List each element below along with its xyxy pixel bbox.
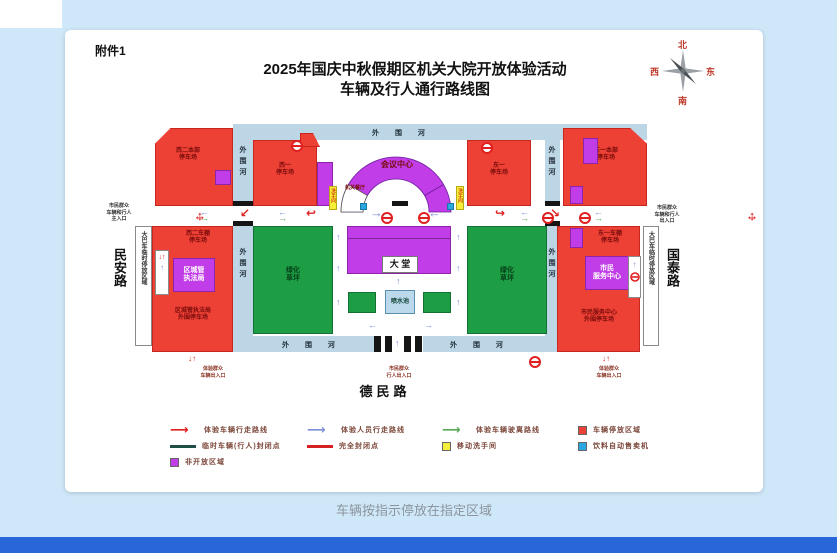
two-way-route-icon: ←→ <box>200 209 209 221</box>
bus-parking-strip-west-label: 大巴车临时停放区域 <box>139 231 148 285</box>
building-divider <box>348 238 450 239</box>
two-way-route-icon: ←→ <box>520 209 529 221</box>
compass-west-label: 西 <box>650 65 659 78</box>
pedestrian-up-arrow: ↑ <box>336 297 341 307</box>
route-right-arrow: → <box>594 215 603 221</box>
river-top-label: 外 围 河 <box>372 128 432 138</box>
gate-pillar <box>385 336 392 352</box>
pedestrian-up-arrow: ↑ <box>456 263 461 273</box>
entrance-southeast-label: 体验群众 车辆出入口 <box>582 366 636 379</box>
compass: 北 西 东 南 <box>650 38 716 106</box>
pedestrian-up-arrow: ↑ <box>336 263 341 273</box>
parking-e1-line2: 停车场 <box>469 170 529 177</box>
canteen-label: 机关餐厅 <box>340 185 370 191</box>
gate-pillar <box>374 336 381 352</box>
lobby-block: 大 堂 <box>382 256 418 273</box>
pedestrian-arrow-icon: ← <box>428 205 441 220</box>
lawn-west-line2: 草坪 <box>254 275 332 283</box>
bottom-bar <box>0 537 837 553</box>
crossroads-arrow-icon: ↔↕ <box>745 209 759 222</box>
pedestrian-right-arrow: → <box>424 320 433 330</box>
toilet-marker-east: 洗手间 <box>456 186 464 210</box>
bus-parking-strip-east-label: 大巴车临时停放区域 <box>647 231 656 285</box>
pedestrian-up-arrow: ↑ <box>395 338 400 348</box>
lawn-east-line2: 草坪 <box>468 275 546 283</box>
legend-item-parking-area: 车辆停放区域 <box>578 425 641 435</box>
page-caption: 车辆按指示停放在指定区域 <box>65 500 763 519</box>
bus-parking-strip-east: 大巴车临时停放区域 <box>643 226 659 346</box>
closure-bar <box>233 221 253 226</box>
lawn-east-label: 绿化 草坪 <box>468 267 546 284</box>
restricted-patch <box>215 170 231 185</box>
legend-label: 临时车辆(行人)封闭点 <box>202 441 281 451</box>
vehicle-gate-arrows: ↓↑ <box>188 354 196 363</box>
pedestrian-up-arrow: ↑ <box>396 276 401 286</box>
legend-item-vending-machine: 饮料自动售卖机 <box>578 441 649 451</box>
no-entry-icon <box>529 356 541 368</box>
legend-label: 体验车辆驶离路线 <box>476 425 540 435</box>
river-left-upper-label: 外围河 <box>239 146 246 179</box>
turn-arrow-icon: ↙ <box>240 206 250 220</box>
legend-item-pedestrian-route: ⟶ 体验人员行走路线 <box>307 425 405 435</box>
west-shed-line2: 停车场 <box>172 238 224 245</box>
river-right-upper-label: 外围河 <box>548 146 555 179</box>
purple-square-icon <box>170 458 179 467</box>
entrance-sw-line2: 车辆出入口 <box>186 373 240 380</box>
route-right-arrow: → <box>278 215 287 221</box>
urban-mgmt-line2: 执法局 <box>184 275 205 283</box>
toilet-marker-west: 洗手间 <box>329 186 337 210</box>
lawn-east-block: 绿化 草坪 <box>467 226 547 334</box>
page: 附件1 2025年国庆中秋假期区机关大院开放体验活动 车辆及行人通行路线图 北 … <box>0 0 837 553</box>
parking-w1-line2: 停车场 <box>255 170 315 177</box>
red-route-arrow-icon: ⟶ <box>170 425 198 435</box>
legend-item-departure-route: ⟶ 体验车辆驶离路线 <box>442 425 540 435</box>
toilet-marker-label: 洗手间 <box>330 188 337 203</box>
entrance-south-label: 市民群众 行人出入口 <box>374 366 424 379</box>
entrance-west-label: 市民群众 车辆和行人 主入口 <box>96 203 142 223</box>
green-planter-west <box>348 292 376 313</box>
vehicle-arrows: ↓↑ <box>159 254 166 261</box>
route-right-arrow: → <box>200 215 209 221</box>
river-bottom-right-label: 外 围 河 <box>450 340 510 350</box>
cyan-square-icon <box>578 442 587 451</box>
urban-mgmt-lot-line2: 外围停车场 <box>160 315 226 322</box>
restricted-patch <box>583 138 598 164</box>
citizen-service-center-block: 市民 服务中心 <box>585 256 629 290</box>
arrow-vertical: ↕ <box>745 209 759 222</box>
pedestrian-arrow-icon: → <box>370 205 383 220</box>
river-right-lower-label: 外围河 <box>548 248 555 281</box>
compass-east-label: 东 <box>706 65 715 78</box>
blue-route-arrow-icon: ⟶ <box>307 425 335 435</box>
legend-label: 非开放区域 <box>185 457 225 467</box>
urban-mgmt-bureau-block: 区城管 执法局 <box>173 258 215 292</box>
green-route-arrow-icon: ⟶ <box>442 425 470 435</box>
road-south-label: 德民路 <box>345 381 425 400</box>
service-lot-line2: 外围停车场 <box>566 317 632 324</box>
lawn-west-label: 绿化 草坪 <box>254 267 332 284</box>
east-shed-label: 东一车棚 停车场 <box>586 231 634 245</box>
entrance-south-line2: 行人出入口 <box>374 373 424 380</box>
service-line2: 服务中心 <box>593 273 621 281</box>
conference-center-label: 会议中心 <box>355 160 439 170</box>
map-title-line1: 2025年国庆中秋假期区机关大院开放体验活动 <box>155 58 675 79</box>
restricted-patch <box>570 186 583 204</box>
red-square-icon <box>578 426 587 435</box>
toilet-marker-label: 洗手间 <box>457 188 464 203</box>
pedestrian-left-arrow: ← <box>368 320 377 330</box>
road-east-label: 国泰路 <box>663 248 682 287</box>
pedestrian-arrow: ↑ <box>160 263 164 272</box>
pedestrian-up-arrow: ↑ <box>456 232 461 242</box>
river-bottom-left-label: 外 围 河 <box>282 340 342 350</box>
no-entry-icon <box>630 272 640 282</box>
uturn-arrow-icon: ↩ <box>306 206 316 220</box>
river-left-lower <box>233 226 253 336</box>
legend-label: 车辆停放区域 <box>593 425 641 435</box>
green-planter-east <box>423 292 451 313</box>
pedestrian-up-arrow: ↑ <box>456 297 461 307</box>
red-line-icon <box>307 445 333 448</box>
two-way-route-icon: ←→ <box>594 209 603 221</box>
gate-pillar <box>404 336 411 352</box>
east-vehicle-lane: ↑ <box>628 256 641 298</box>
no-entry-icon <box>579 212 591 224</box>
urban-mgmt-lot-label: 区城管执法局 外围停车场 <box>160 308 226 322</box>
bus-parking-strip-west: 大巴车临时停放区域 <box>135 226 152 346</box>
page-corner <box>0 0 62 28</box>
east-shed-line2: 停车场 <box>586 238 634 245</box>
legend-label: 完全封闭点 <box>339 441 379 451</box>
legend-item-vehicle-route: ⟶ 体验车辆行走路线 <box>170 425 268 435</box>
turn-arrow-icon: ↘ <box>550 206 560 220</box>
entrance-east-line3: 出入口 <box>644 218 690 225</box>
pedestrian-arrow: ↑ <box>633 260 637 269</box>
vending-machine-marker <box>447 203 454 210</box>
entrance-southwest-label: 体验群众 车辆出入口 <box>186 366 240 379</box>
pedestrian-up-arrow: ↑ <box>336 232 341 242</box>
lawn-west-block: 绿化 草坪 <box>253 226 333 334</box>
west-vehicle-lane: ↓↑ ↑ <box>155 250 169 295</box>
legend-item-mobile-toilet: 移动洗手间 <box>442 441 497 451</box>
uturn-arrow-icon: ↪ <box>495 206 505 220</box>
attachment-label: 附件1 <box>95 42 126 59</box>
service-lot-label: 市民服务中心 外围停车场 <box>566 310 632 324</box>
yellow-square-icon <box>442 442 451 451</box>
vehicle-gate-arrows: ↓↑ <box>602 354 610 363</box>
compass-star-icon <box>662 50 704 92</box>
legend-label: 体验人员行走路线 <box>341 425 405 435</box>
map-title-line2: 车辆及行人通行路线图 <box>155 78 675 99</box>
vending-machine-marker <box>360 203 367 210</box>
legend-item-non-open-area: 非开放区域 <box>170 457 225 467</box>
legend-label: 移动洗手间 <box>457 441 497 451</box>
entrance-west-line3: 主入口 <box>96 216 142 223</box>
parking-e1-label: 东一 停车场 <box>469 163 529 177</box>
service-line1: 市民 <box>593 265 621 273</box>
legend-label: 体验车辆行走路线 <box>204 425 268 435</box>
river-left-lower-label: 外围河 <box>239 248 246 281</box>
two-way-route-icon: ←→ <box>278 209 287 221</box>
parking-nw-line2: 停车场 <box>158 155 218 162</box>
compass-south-label: 南 <box>678 94 687 107</box>
restricted-patch <box>570 228 583 248</box>
urban-mgmt-bureau-label: 区城管 执法局 <box>184 267 205 284</box>
road-west-label: 民安路 <box>110 248 129 287</box>
legend-label: 饮料自动售卖机 <box>593 441 649 451</box>
gate-pillar <box>415 336 422 352</box>
parking-nw-label: 西二本部 停车场 <box>158 148 218 162</box>
no-entry-icon <box>291 140 303 152</box>
legend-item-full-closure: 完全封闭点 <box>307 441 379 451</box>
parking-w1-label: 西一 停车场 <box>255 163 315 177</box>
legend-item-temp-closure: 临时车辆(行人)封闭点 <box>170 441 281 451</box>
entrance-east-label: 市民群众 车辆和行人 出入口 <box>644 205 690 225</box>
west-shed-label: 西二车棚 停车场 <box>172 231 224 245</box>
urban-mgmt-line1: 区城管 <box>184 267 205 275</box>
parking-nw-block <box>155 128 233 206</box>
citizen-service-center-label: 市民 服务中心 <box>593 265 621 282</box>
fountain-block: 喷水池 <box>385 290 415 314</box>
entrance-se-line2: 车辆出入口 <box>582 373 636 380</box>
route-right-arrow: → <box>520 215 529 221</box>
dark-line-icon <box>170 445 196 448</box>
